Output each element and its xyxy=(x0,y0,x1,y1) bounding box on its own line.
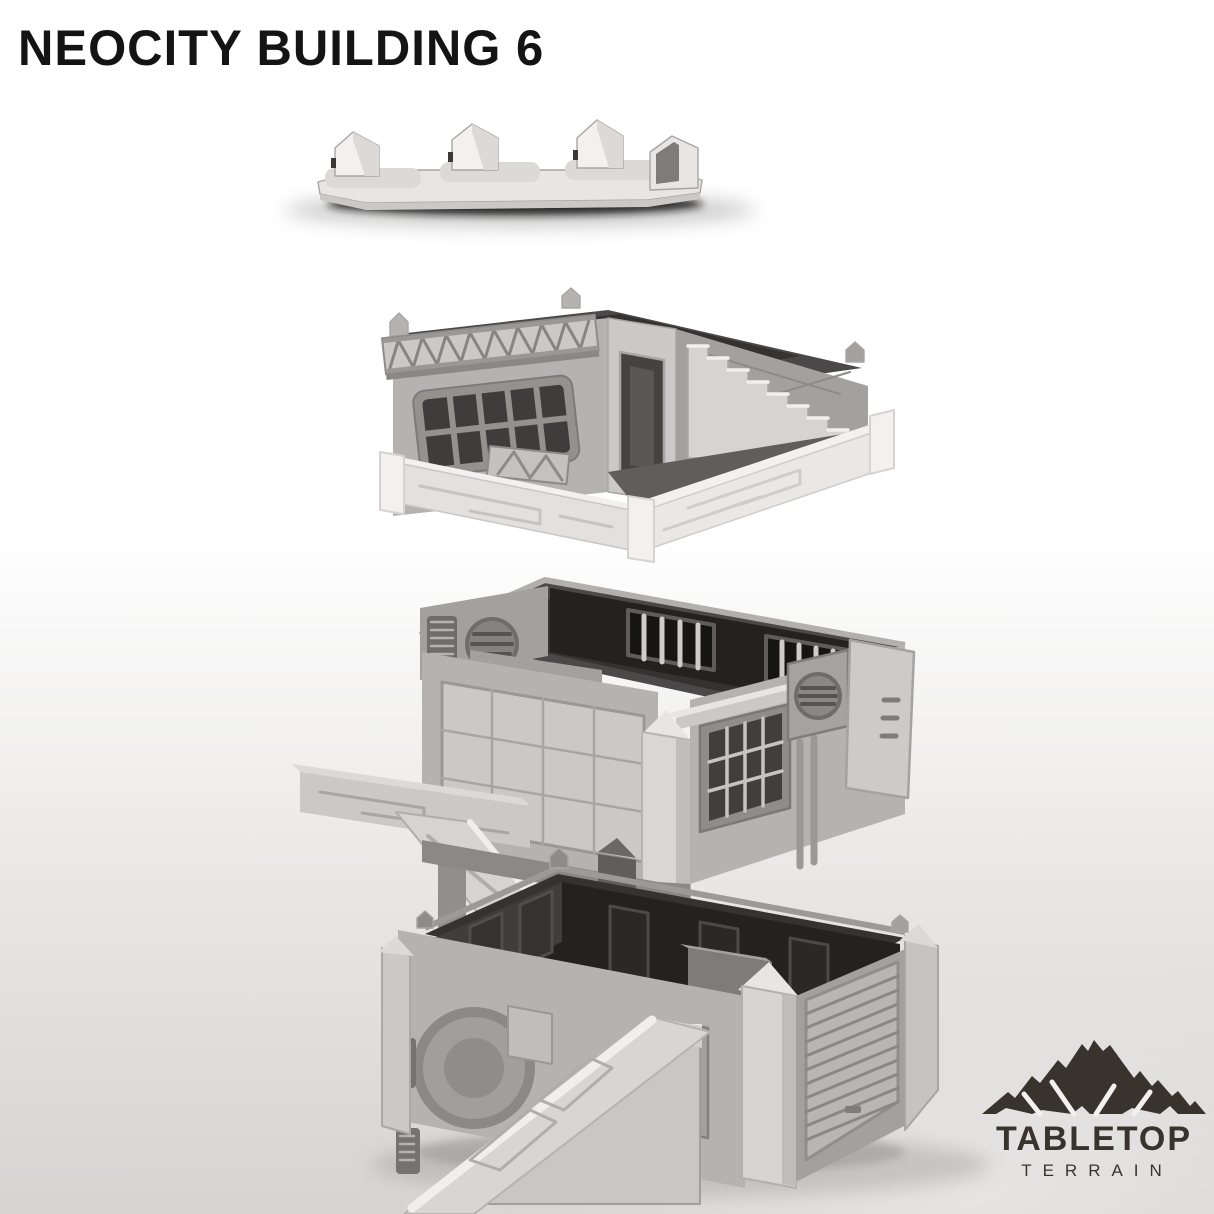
brand-logo: TABLETOP TERRAIN xyxy=(980,1034,1208,1181)
corner-pillar xyxy=(738,962,800,1188)
roof-cap-piece xyxy=(285,120,755,227)
mountain-icon xyxy=(982,1034,1206,1120)
brand-name: TABLETOP xyxy=(980,1122,1208,1158)
upper-window xyxy=(700,704,790,832)
roof-vent-icon xyxy=(448,124,498,170)
brand-subtitle: TERRAIN xyxy=(986,1161,1208,1181)
roof-vent-icon xyxy=(573,120,623,168)
roof-vent-icon xyxy=(331,132,379,176)
roof-hatch-icon xyxy=(650,136,698,190)
exploded-building-render xyxy=(0,0,1214,1214)
penthouse-piece xyxy=(380,288,894,562)
door-leaf-slab xyxy=(846,640,914,798)
product-image: NEOCITY BUILDING 6 xyxy=(0,0,1214,1214)
vent-box xyxy=(788,650,848,740)
